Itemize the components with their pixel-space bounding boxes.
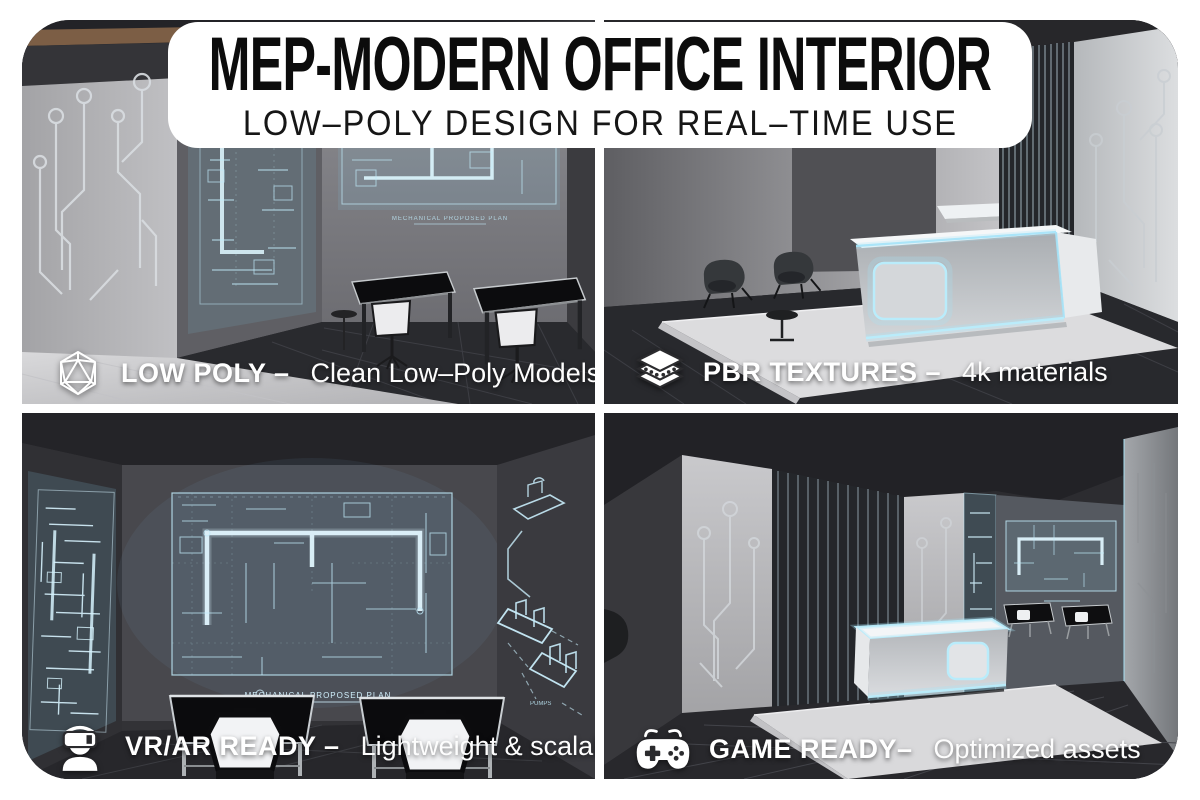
- promo-image: MECHANICAL PROPOSED PLAN: [0, 0, 1200, 800]
- feature-title: PBR TEXTURES –: [703, 357, 941, 388]
- feature-caption-vr: VR/AR READY – Lightweight & scalable: [52, 720, 595, 772]
- gamepad-icon: [634, 726, 692, 772]
- feature-caption-low-poly: LOW POLY – Clean Low–Poly Models: [52, 349, 595, 397]
- feature-caption-game: GAME READY– Optimized assets: [634, 726, 1141, 772]
- feature-title: LOW POLY –: [121, 358, 290, 389]
- feature-desc: Lightweight & scalable: [361, 731, 595, 762]
- feature-desc: Optimized assets: [934, 734, 1141, 765]
- ceiling: [22, 413, 595, 465]
- blueprint-caption: MECHANICAL PROPOSED PLAN: [392, 216, 508, 222]
- title-banner: MEP-MODERN OFFICE INTERIOR LOW–POLY DESI…: [168, 22, 1032, 148]
- pipes-label: PUMPS: [530, 701, 551, 707]
- left-wall: [604, 455, 682, 765]
- blueprint-hologram-left: [28, 471, 116, 761]
- feature-title: VR/AR READY –: [125, 731, 340, 762]
- feature-desc: 4k materials: [962, 357, 1108, 388]
- feature-caption-pbr: PBR TEXTURES – 4k materials: [634, 347, 1108, 397]
- panel-game-ready: GAME READY– Optimized assets: [604, 413, 1178, 779]
- layers-icon: [634, 347, 686, 397]
- vr-headset-person-icon: [52, 720, 108, 772]
- blueprint-hologram: [1006, 521, 1116, 601]
- pillar: [682, 455, 772, 721]
- reception-desk: [854, 619, 1008, 702]
- icosahedron-wireframe-icon: [52, 349, 104, 397]
- panel-vr-ar: MECHANICAL PROPOSED PLAN PUMPS: [22, 413, 595, 779]
- blueprint-hologram-main: MECHANICAL PROPOSED PLAN: [172, 493, 452, 702]
- scene-lobby: [604, 413, 1178, 779]
- page-title: MEP-MODERN OFFICE INTERIOR: [209, 26, 992, 104]
- feature-title: GAME READY–: [709, 734, 913, 765]
- feature-desc: Clean Low–Poly Models: [311, 358, 595, 389]
- page-subtitle: LOW–POLY DESIGN FOR REAL–TIME USE: [243, 104, 958, 144]
